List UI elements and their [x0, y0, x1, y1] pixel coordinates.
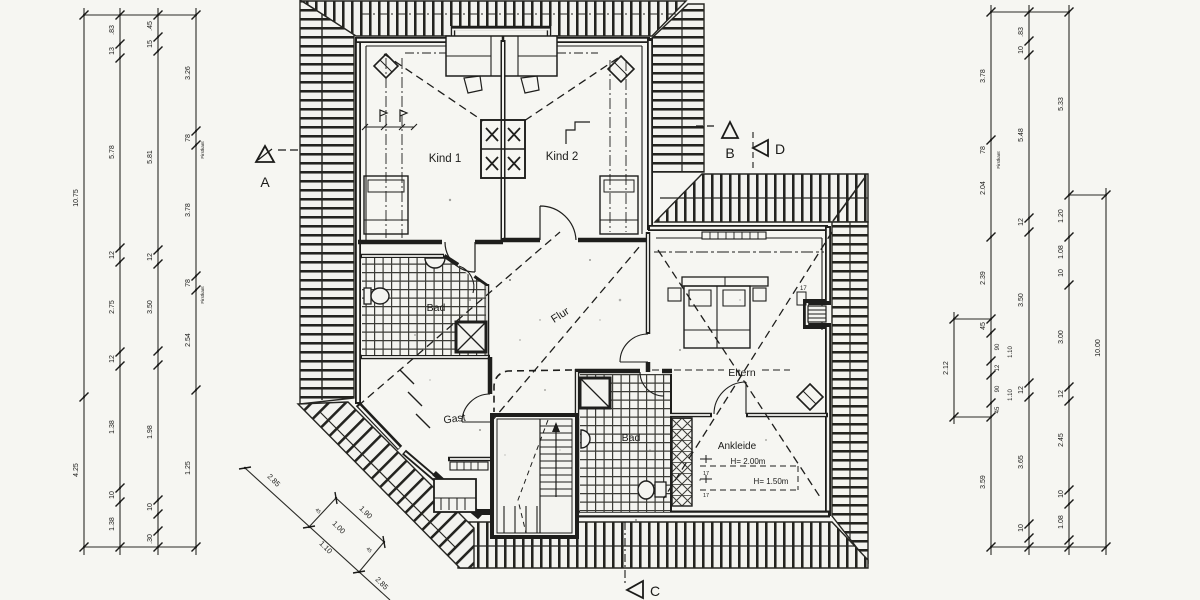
svg-text:Firstkant: Firstkant	[996, 151, 1001, 169]
svg-text:3.50: 3.50	[1018, 293, 1025, 307]
svg-text:90: 90	[995, 385, 1001, 392]
svg-text:1.20: 1.20	[1058, 209, 1065, 223]
svg-text:3.50: 3.50	[147, 300, 154, 314]
svg-text:.45: .45	[147, 21, 154, 31]
svg-text:78: 78	[185, 134, 192, 142]
svg-text:12: 12	[1058, 390, 1065, 398]
svg-text:10: 10	[1058, 269, 1065, 277]
svg-text:.83: .83	[109, 25, 116, 35]
svg-text:H= 1.50m: H= 1.50m	[754, 477, 789, 486]
svg-text:10: 10	[1018, 524, 1025, 532]
svg-text:2.04: 2.04	[980, 181, 987, 195]
svg-text:10.75: 10.75	[73, 189, 80, 207]
svg-text:10: 10	[1058, 490, 1065, 498]
svg-text:5.78: 5.78	[109, 145, 116, 159]
svg-text:78: 78	[980, 146, 987, 154]
svg-text:12: 12	[1018, 218, 1025, 226]
svg-text:D: D	[775, 141, 785, 157]
svg-text:1.98: 1.98	[147, 425, 154, 439]
svg-text:5.33: 5.33	[1058, 97, 1065, 111]
svg-text:3.00: 3.00	[1058, 330, 1065, 344]
svg-text:5.81: 5.81	[147, 150, 154, 164]
svg-text:2.54: 2.54	[185, 333, 192, 347]
svg-text:3.26: 3.26	[185, 66, 192, 80]
svg-text:10: 10	[1018, 46, 1025, 54]
svg-text:.30: .30	[147, 534, 154, 544]
svg-text:4.25: 4.25	[73, 463, 80, 477]
svg-text:12: 12	[1018, 386, 1025, 394]
svg-text:17: 17	[800, 286, 807, 292]
svg-text:12: 12	[995, 364, 1001, 371]
svg-text:2.45: 2.45	[1058, 433, 1065, 447]
svg-text:3.78: 3.78	[185, 203, 192, 217]
svg-text:90: 90	[995, 343, 1001, 350]
svg-text:2.75: 2.75	[109, 300, 116, 314]
svg-text:Kind 2: Kind 2	[546, 151, 579, 163]
svg-text:Ankleide: Ankleide	[718, 441, 757, 452]
svg-text:12: 12	[109, 251, 116, 259]
svg-text:3.65: 3.65	[1018, 455, 1025, 469]
svg-text:1.08: 1.08	[1058, 245, 1065, 259]
svg-text:12: 12	[109, 355, 116, 363]
svg-text:1.08: 1.08	[1058, 515, 1065, 529]
svg-text:10: 10	[147, 503, 154, 511]
svg-text:17: 17	[703, 471, 709, 477]
svg-text:H= 2.00m: H= 2.00m	[731, 457, 766, 466]
svg-text:Bad: Bad	[427, 302, 446, 314]
svg-text:Bad: Bad	[622, 432, 641, 444]
svg-text:Kind 1: Kind 1	[429, 153, 462, 165]
svg-text:Firstkant: Firstkant	[200, 286, 205, 304]
svg-text:1.25: 1.25	[185, 461, 192, 475]
svg-text:1.10: 1.10	[1008, 346, 1014, 358]
svg-text:5.48: 5.48	[1018, 128, 1025, 142]
svg-text:A: A	[260, 174, 270, 190]
svg-text:10: 10	[109, 491, 116, 499]
svg-text:Eltern: Eltern	[728, 367, 756, 379]
svg-text:2.12: 2.12	[943, 361, 950, 375]
svg-text:3.59: 3.59	[980, 475, 987, 489]
svg-text:Firstkant: Firstkant	[200, 141, 205, 159]
svg-text:45: 45	[980, 322, 987, 330]
svg-text:45: 45	[995, 406, 1001, 413]
svg-text:.83: .83	[1018, 27, 1025, 37]
svg-text:10.00: 10.00	[1095, 339, 1102, 357]
svg-text:17: 17	[703, 493, 709, 499]
svg-text:1.38: 1.38	[109, 517, 116, 531]
svg-text:3.78: 3.78	[980, 69, 987, 83]
svg-text:12: 12	[147, 253, 154, 261]
svg-text:13: 13	[109, 47, 116, 55]
svg-text:1.38: 1.38	[109, 420, 116, 434]
svg-text:15: 15	[147, 40, 154, 48]
svg-text:78: 78	[185, 279, 192, 287]
svg-text:B: B	[725, 145, 734, 161]
svg-text:1.10: 1.10	[1008, 389, 1014, 401]
svg-text:2.39: 2.39	[980, 271, 987, 285]
svg-text:C: C	[650, 583, 660, 599]
